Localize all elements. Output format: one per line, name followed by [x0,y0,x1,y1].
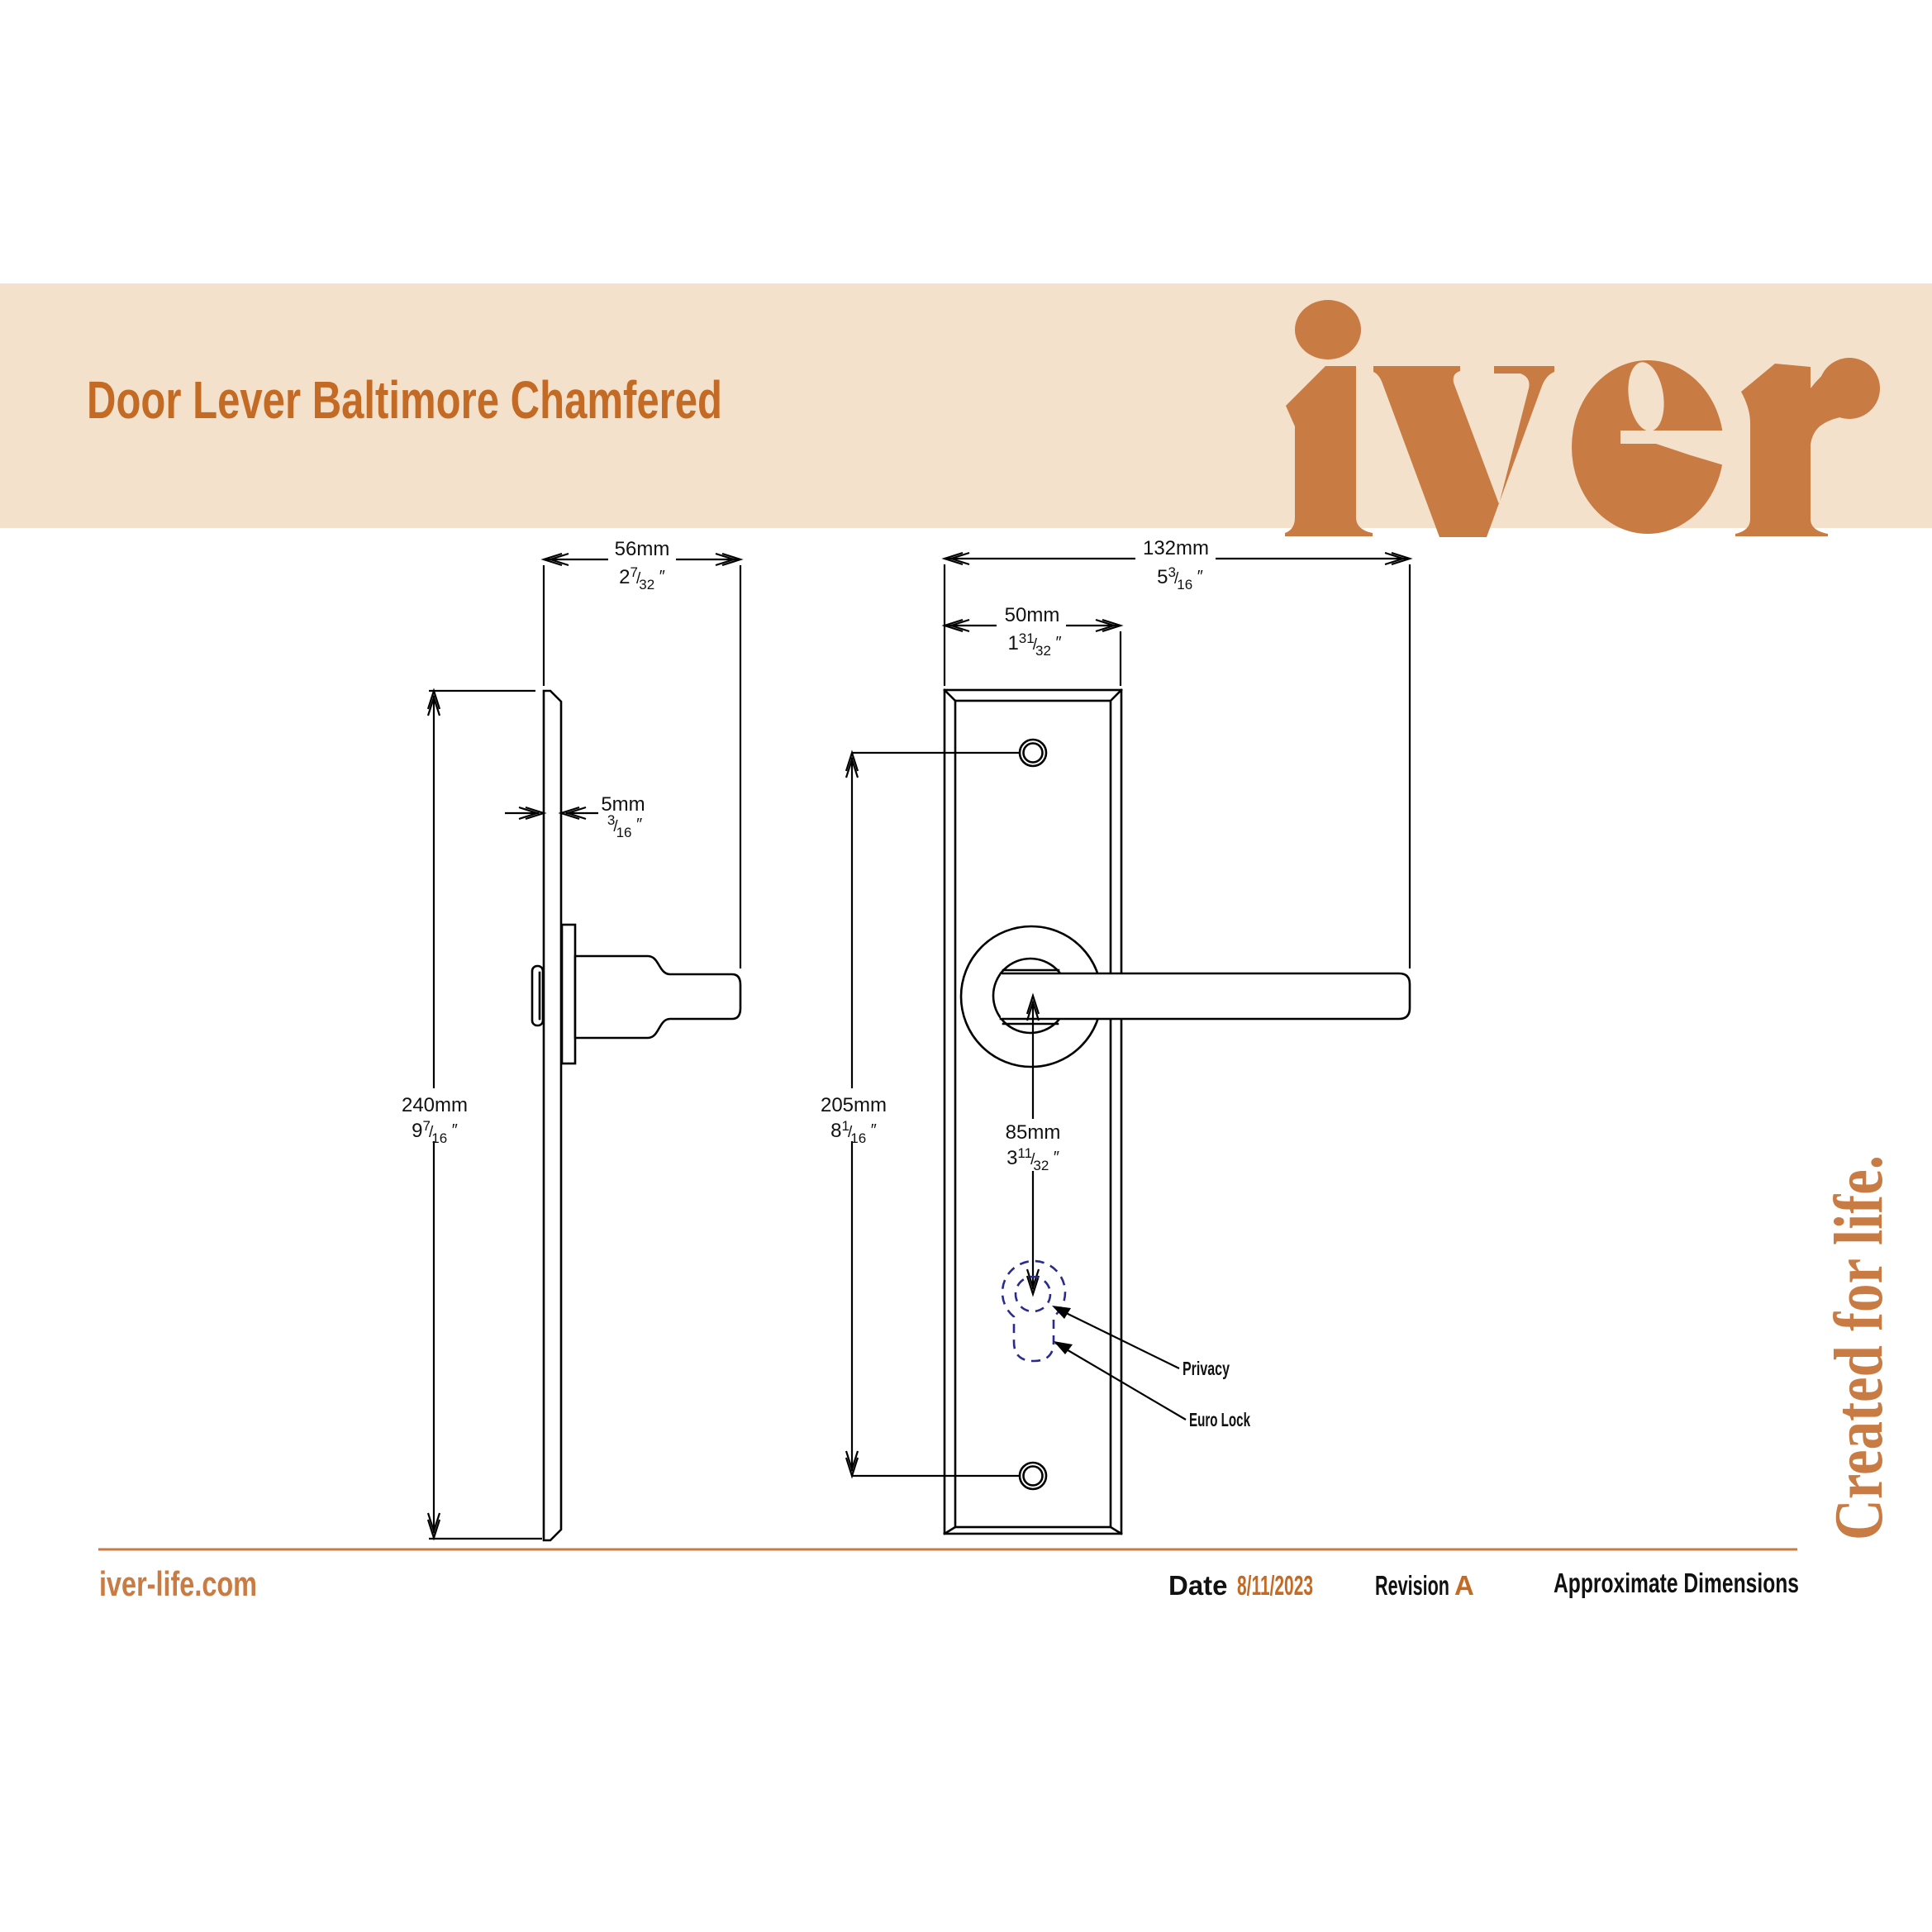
svg-text:Euro Lock: Euro Lock [1189,1409,1250,1430]
svg-text:Date: Date [1168,1570,1228,1601]
svg-text:56mm: 56mm [615,538,670,560]
svg-text:50mm: 50mm [1005,604,1060,626]
svg-text:240mm: 240mm [402,1094,468,1116]
svg-text:205mm: 205mm [821,1094,887,1116]
svg-text:iver-life.com: iver-life.com [99,1564,257,1603]
svg-text:Created for life.: Created for life. [1820,1155,1897,1540]
svg-text:Door Lever Baltimore Chamfered: Door Lever Baltimore Chamfered [87,370,722,430]
svg-text:Approximate Dimensions: Approximate Dimensions [1554,1568,1799,1598]
svg-text:8/11/2023: 8/11/2023 [1237,1570,1313,1601]
svg-text:A: A [1454,1570,1474,1601]
svg-text:Revision: Revision [1375,1570,1449,1601]
svg-text:Privacy: Privacy [1183,1358,1230,1379]
svg-text:85mm: 85mm [1006,1121,1061,1144]
svg-text:132mm: 132mm [1143,537,1209,559]
